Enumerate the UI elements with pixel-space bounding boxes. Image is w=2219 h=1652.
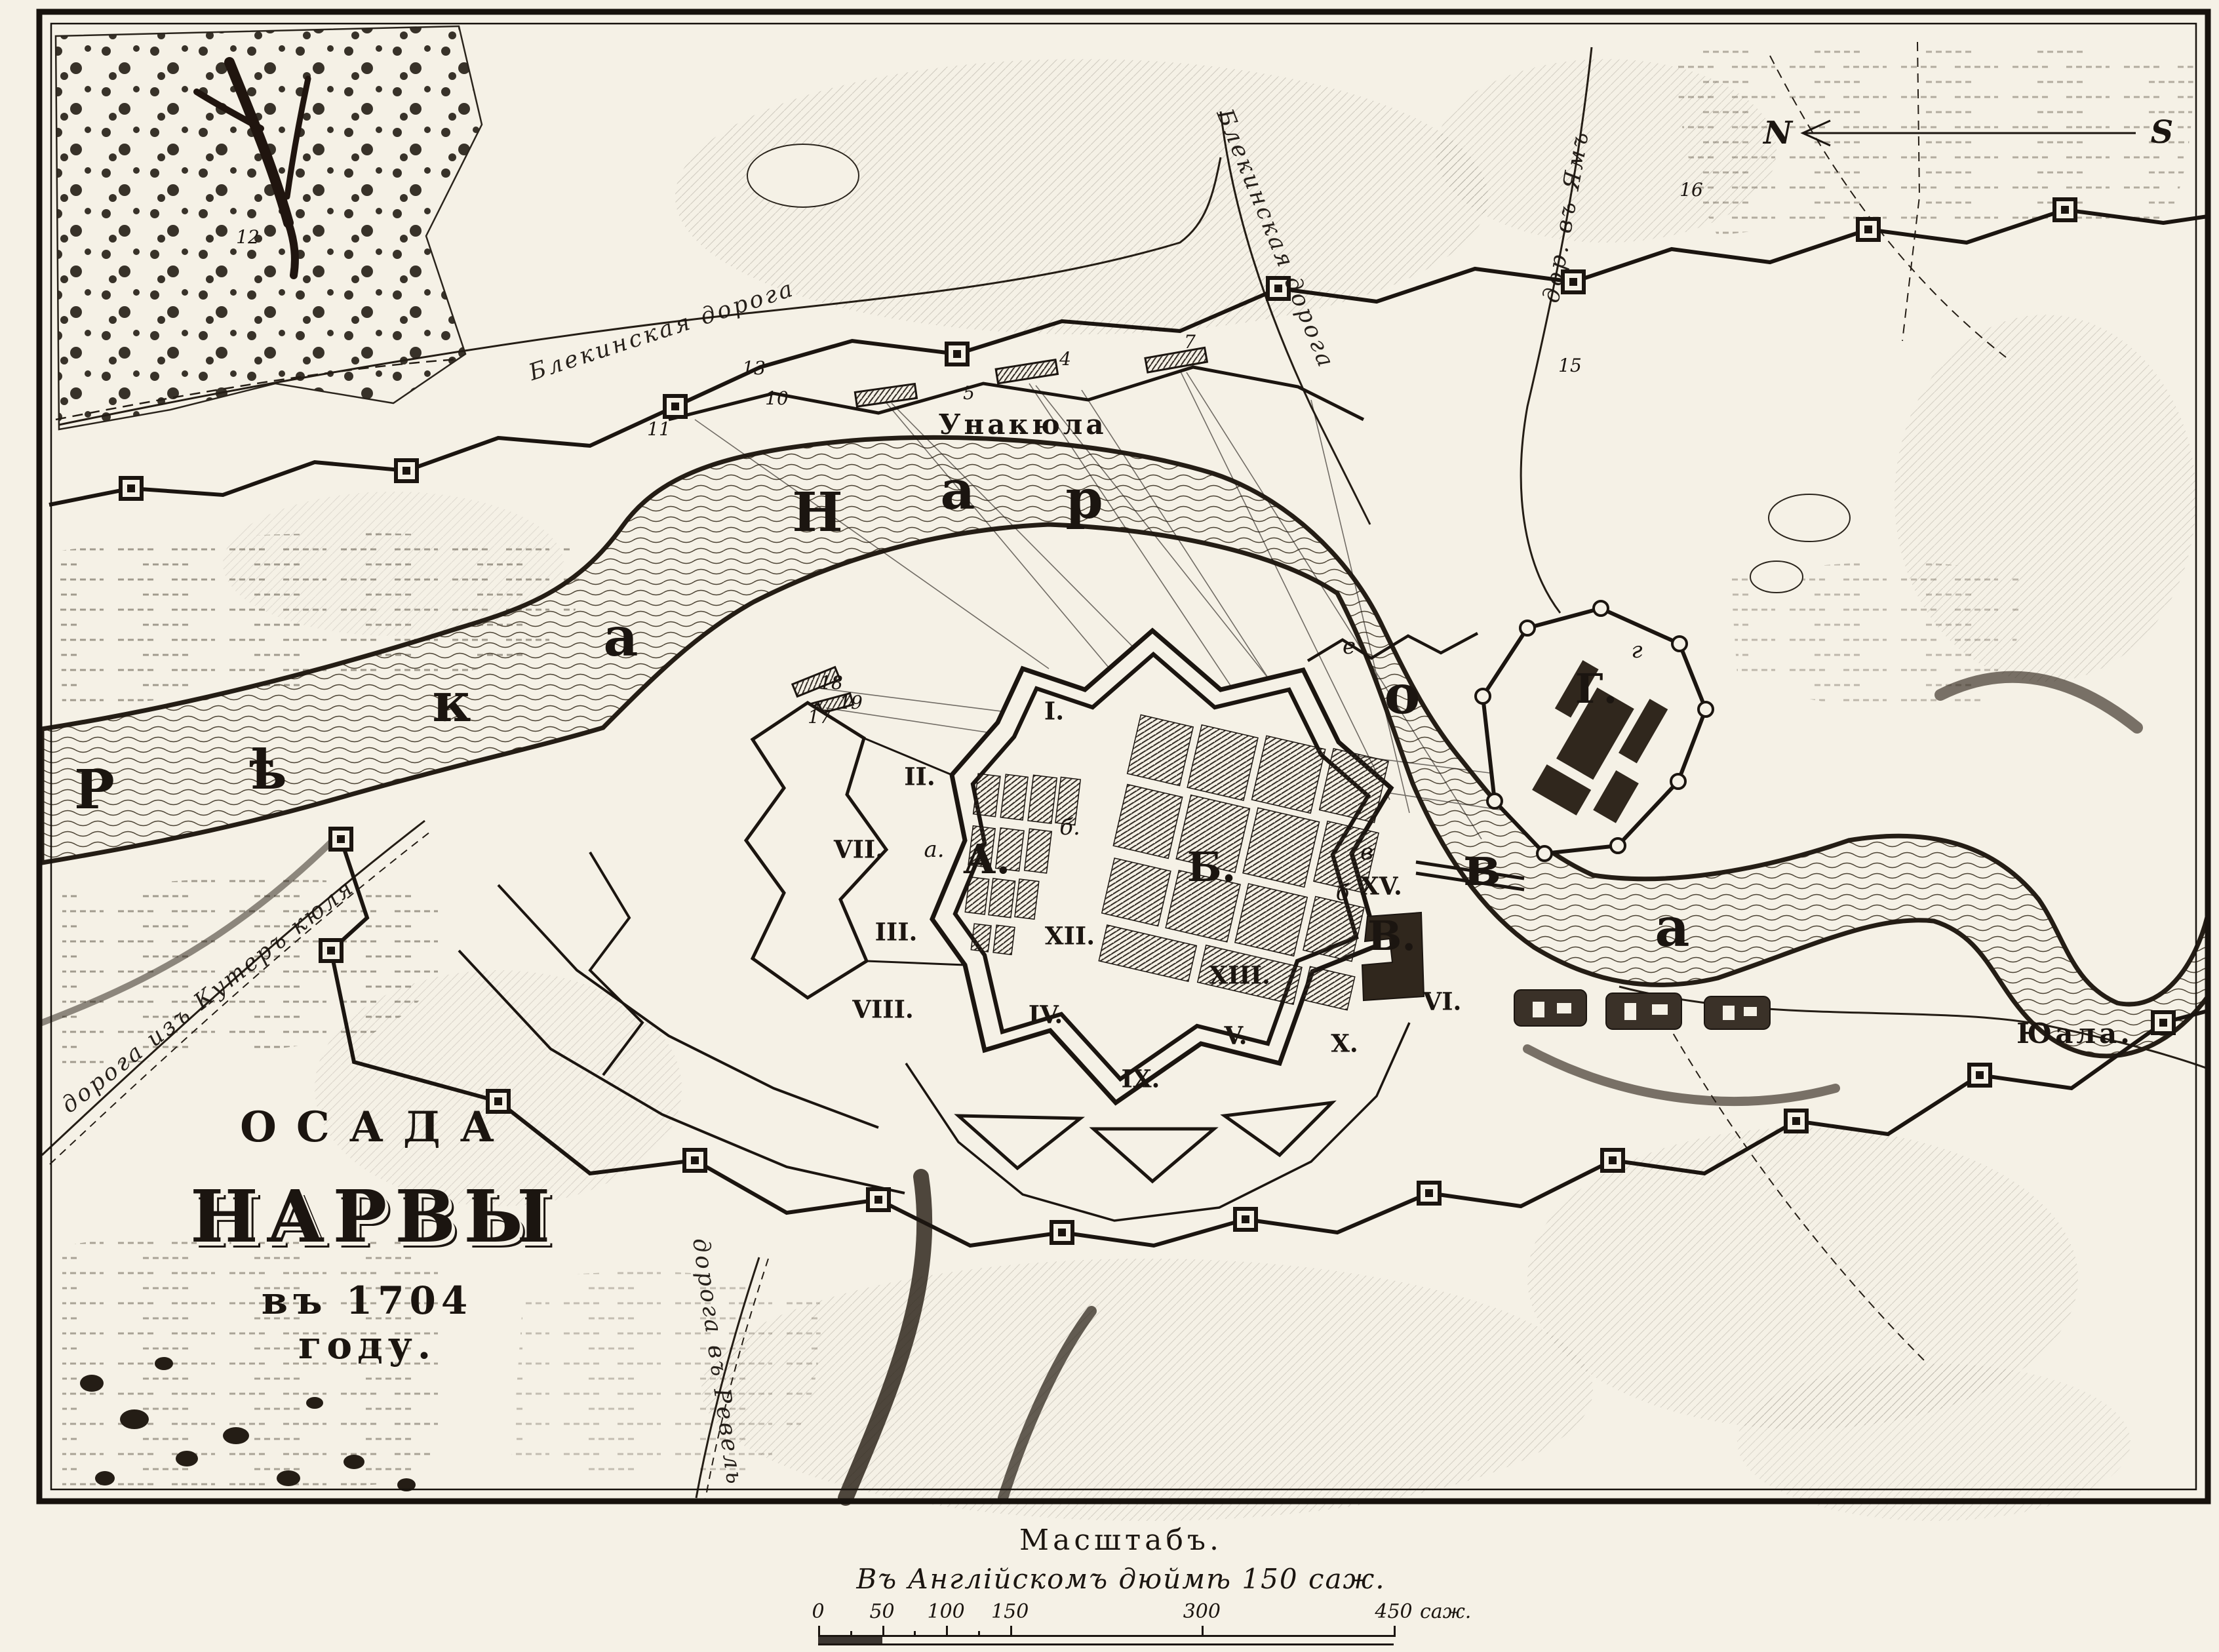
title-line-year: въ 1704 году. <box>190 1278 544 1367</box>
map-engraving <box>0 0 2219 1652</box>
scale-major-tick <box>1010 1626 1012 1637</box>
scale-major-tick <box>946 1626 948 1637</box>
scale-unit-label: саж. <box>1420 1600 1471 1623</box>
scale-major-tick <box>1202 1626 1204 1637</box>
scale-major-tick <box>882 1626 884 1637</box>
scale-tick-label: 0 <box>812 1600 824 1623</box>
scale-tick-label: 50 <box>869 1600 894 1623</box>
scale-tick-label: 300 <box>1183 1600 1221 1623</box>
scale-minor-tick <box>850 1631 852 1637</box>
scale-heading: Масштабъ. <box>774 1524 1468 1557</box>
scale-subheading: Въ Англійскомъ дюймѣ 150 саж. <box>774 1563 1468 1595</box>
scale-block: Масштабъ. Въ Англійскомъ дюймѣ 150 саж. … <box>774 1524 1468 1648</box>
siege-map-canvas: РѣкаНароваА.Б.В.Г.I.II.III.IV.V.VI.VII.V… <box>0 0 2219 1652</box>
scale-tick-label: 100 <box>927 1600 964 1623</box>
scale-tick-label: 450 <box>1375 1600 1412 1623</box>
scale-tick-label: 150 <box>991 1600 1029 1623</box>
map-title-cartouche: ОСАДА НАРВЫ въ 1704 году. <box>190 1103 544 1367</box>
scale-major-tick <box>1394 1626 1396 1637</box>
title-line-narva: НАРВЫ <box>190 1174 544 1259</box>
scale-minor-tick <box>978 1631 980 1637</box>
scale-bar-filled-segment <box>818 1637 882 1643</box>
scale-minor-tick <box>914 1631 916 1637</box>
scale-major-tick <box>818 1626 820 1637</box>
scale-bar: 050100150300450саж. <box>818 1635 1394 1645</box>
title-line-osada: ОСАДА <box>210 1103 544 1152</box>
